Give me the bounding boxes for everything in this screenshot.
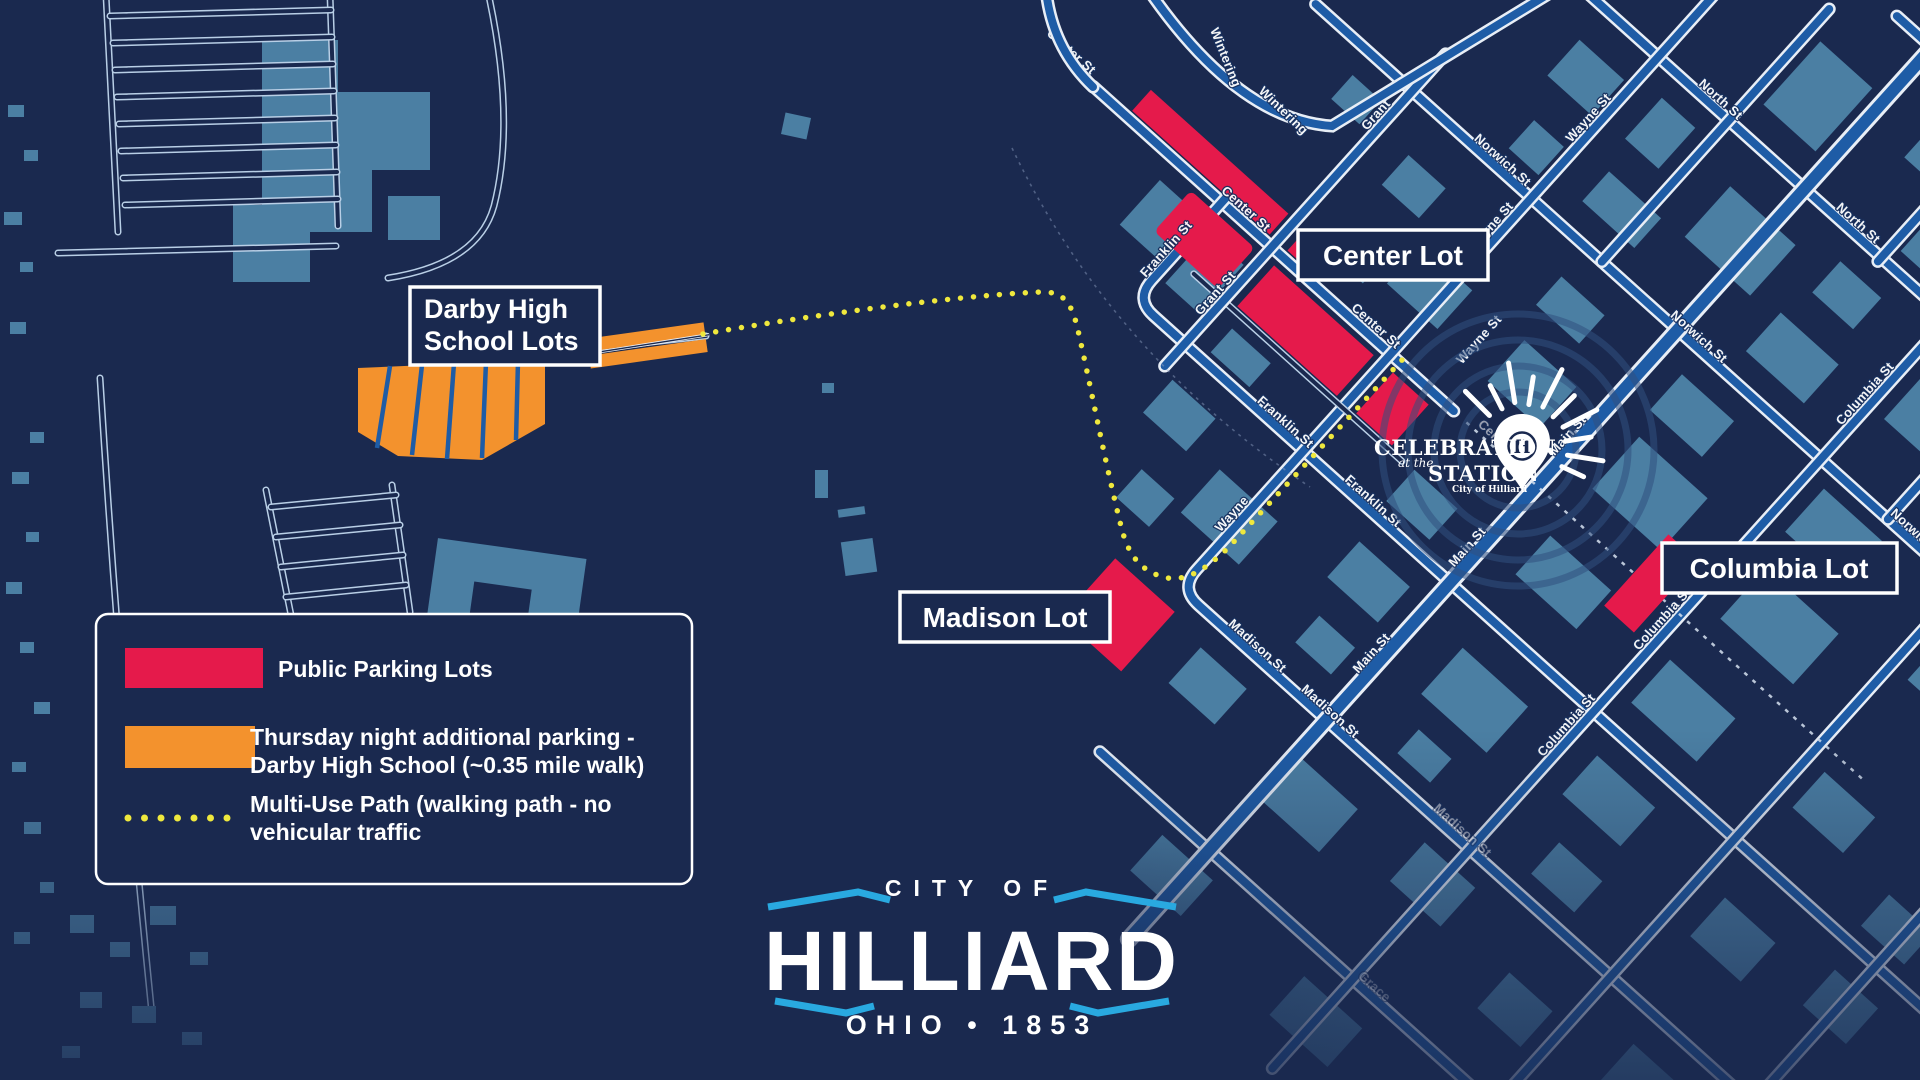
legend-label: Public Parking Lots — [278, 656, 493, 682]
label-text: Madison Lot — [923, 602, 1088, 633]
center-lot-label: Center Lot — [1298, 230, 1488, 280]
map-canvas: Center St Center St Center St Center St … — [0, 0, 1920, 1080]
city-logo-name: HILLIARD — [764, 914, 1180, 1008]
label-text: School Lots — [424, 326, 579, 356]
label-text: Columbia Lot — [1690, 553, 1869, 584]
station-logo-tagline: City of Hilliard — [1452, 485, 1528, 495]
legend-swatch-thursday — [125, 726, 255, 768]
legend-label: Darby High School (~0.35 mile walk) — [250, 752, 644, 778]
station-logo-station: STATION — [1428, 461, 1539, 486]
legend: Public Parking Lots Thursday night addit… — [96, 614, 692, 884]
label-text: Darby High — [424, 294, 568, 324]
legend-label: Thursday night additional parking - — [250, 724, 635, 750]
city-logo-top: CITY OF — [885, 875, 1059, 901]
legend-label: Multi-Use Path (walking path - no — [250, 791, 612, 817]
city-logo-bottom: OHIO • 1853 — [846, 1010, 1099, 1040]
label-text: Center Lot — [1323, 240, 1463, 271]
darby-lot-label: Darby High School Lots — [410, 287, 600, 365]
columbia-lot-label: Columbia Lot — [1662, 543, 1897, 593]
legend-swatch-public — [125, 648, 263, 688]
building — [388, 196, 440, 240]
legend-label: vehicular traffic — [250, 819, 421, 845]
madison-lot-label: Madison Lot — [900, 592, 1110, 642]
